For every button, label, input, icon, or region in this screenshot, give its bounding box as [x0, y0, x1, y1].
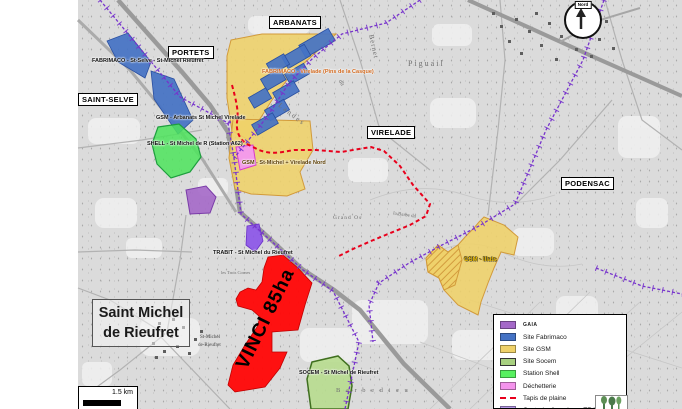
legend-label: GAIA — [523, 322, 538, 328]
town-label-box: Saint Michel de Rieufret — [92, 299, 190, 347]
label-fabrimaco-west: FABRIMACO - St-Selve - St-Michel Rieufre… — [92, 59, 204, 65]
legend-label: Site Socem — [523, 358, 556, 365]
legend-label: Tapis de plaine — [523, 395, 566, 402]
label-gsm-arbanats: GSM - Arbanats St Michel Virelade — [156, 116, 246, 122]
north-arrow-icon — [566, 4, 596, 34]
legend-swatch — [500, 345, 516, 353]
legend-item: Site Socem — [500, 356, 620, 368]
legend-label: Déchetterie — [523, 383, 556, 390]
legend-label: Site GSM — [523, 346, 551, 353]
legend-swatch — [500, 333, 516, 341]
legend-item: Station Shell — [500, 368, 620, 380]
legend-swatch — [500, 397, 516, 399]
toponym-barbedieu: B a r b e d i e u — [336, 388, 410, 395]
label-socem: SOCEM - St Michel de Rieufret — [299, 371, 378, 377]
town-label-line2: de Rieufret — [93, 323, 189, 343]
label-fabrimaco-virelade: FABRIMACO - Virelade (Pins de la Casque) — [262, 70, 374, 76]
toponym-trois-cornes: les Trois Cornes — [221, 271, 250, 276]
logo-box — [595, 395, 628, 409]
commune-label-podensac: PODENSAC — [561, 177, 614, 190]
toponym-village-1: St-Michel — [200, 335, 220, 340]
scale-label: 1.5 km — [112, 389, 133, 396]
label-trabit: TRABIT - St Michel du Rieufret — [213, 251, 293, 257]
label-gsm-virelade-nord: GSM - St-Michel + Virelade Nord — [242, 161, 326, 167]
scale-bar: 1.5 km — [78, 386, 138, 409]
north-arrow: Nord — [564, 1, 602, 39]
commune-label-saint-selve: SAINT-SELVE — [78, 93, 138, 106]
toponym-grand-os: Grand Os — [333, 216, 362, 222]
label-shell: SHELL - St Michel de R (Station A62) — [147, 142, 243, 148]
legend-label: Site Fabrimaco — [523, 334, 567, 341]
legend-label: Station Shell — [523, 370, 560, 377]
legend-swatch — [500, 370, 516, 378]
trees-logo-icon — [596, 396, 625, 409]
commune-label-portets: PORTETS — [168, 46, 214, 59]
legend-item: Site GSM — [500, 343, 620, 355]
commune-label-arbanats: ARBANATS — [269, 16, 321, 29]
station-shell-polygon — [152, 124, 201, 178]
legend-swatch — [500, 382, 516, 390]
toponym-village-2: de-Rieufret — [198, 343, 221, 348]
label-gsm-illats: GSM - Illats — [464, 257, 497, 263]
legend-swatch — [500, 358, 516, 366]
legend-swatch — [500, 321, 516, 329]
legend-item: Déchetterie — [500, 380, 620, 392]
legend-item: GAIA — [500, 319, 620, 331]
scale-bar-rule — [83, 400, 121, 406]
toponym-piguail: Piguail — [408, 60, 445, 68]
map-screenshot: PORTETS ARBANATS SAINT-SELVE VIRELADE PO… — [0, 0, 682, 409]
commune-label-virelade: VIRELADE — [367, 126, 415, 139]
legend-item: Site Fabrimaco — [500, 331, 620, 343]
town-label-line1: Saint Michel — [93, 303, 189, 323]
north-label: Nord — [575, 1, 592, 9]
